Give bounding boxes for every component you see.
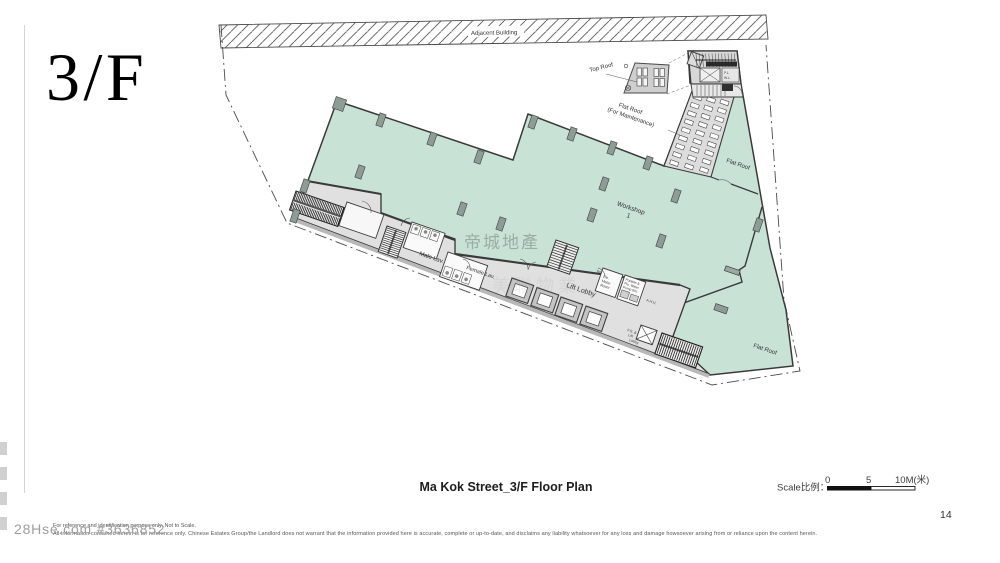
svg-text:0: 0 [825, 475, 830, 486]
svg-text:P.L.: P.L. [724, 71, 730, 75]
svg-text:Adjacent Building: Adjacent Building [471, 30, 517, 37]
svg-text:Top Roof: Top Roof [589, 62, 614, 74]
svg-text:W.L.: W.L. [724, 76, 731, 80]
svg-text:Scale比例：: Scale比例： [777, 482, 829, 494]
svg-text:5: 5 [866, 475, 871, 486]
svg-text:10M(米): 10M(米) [895, 474, 929, 486]
